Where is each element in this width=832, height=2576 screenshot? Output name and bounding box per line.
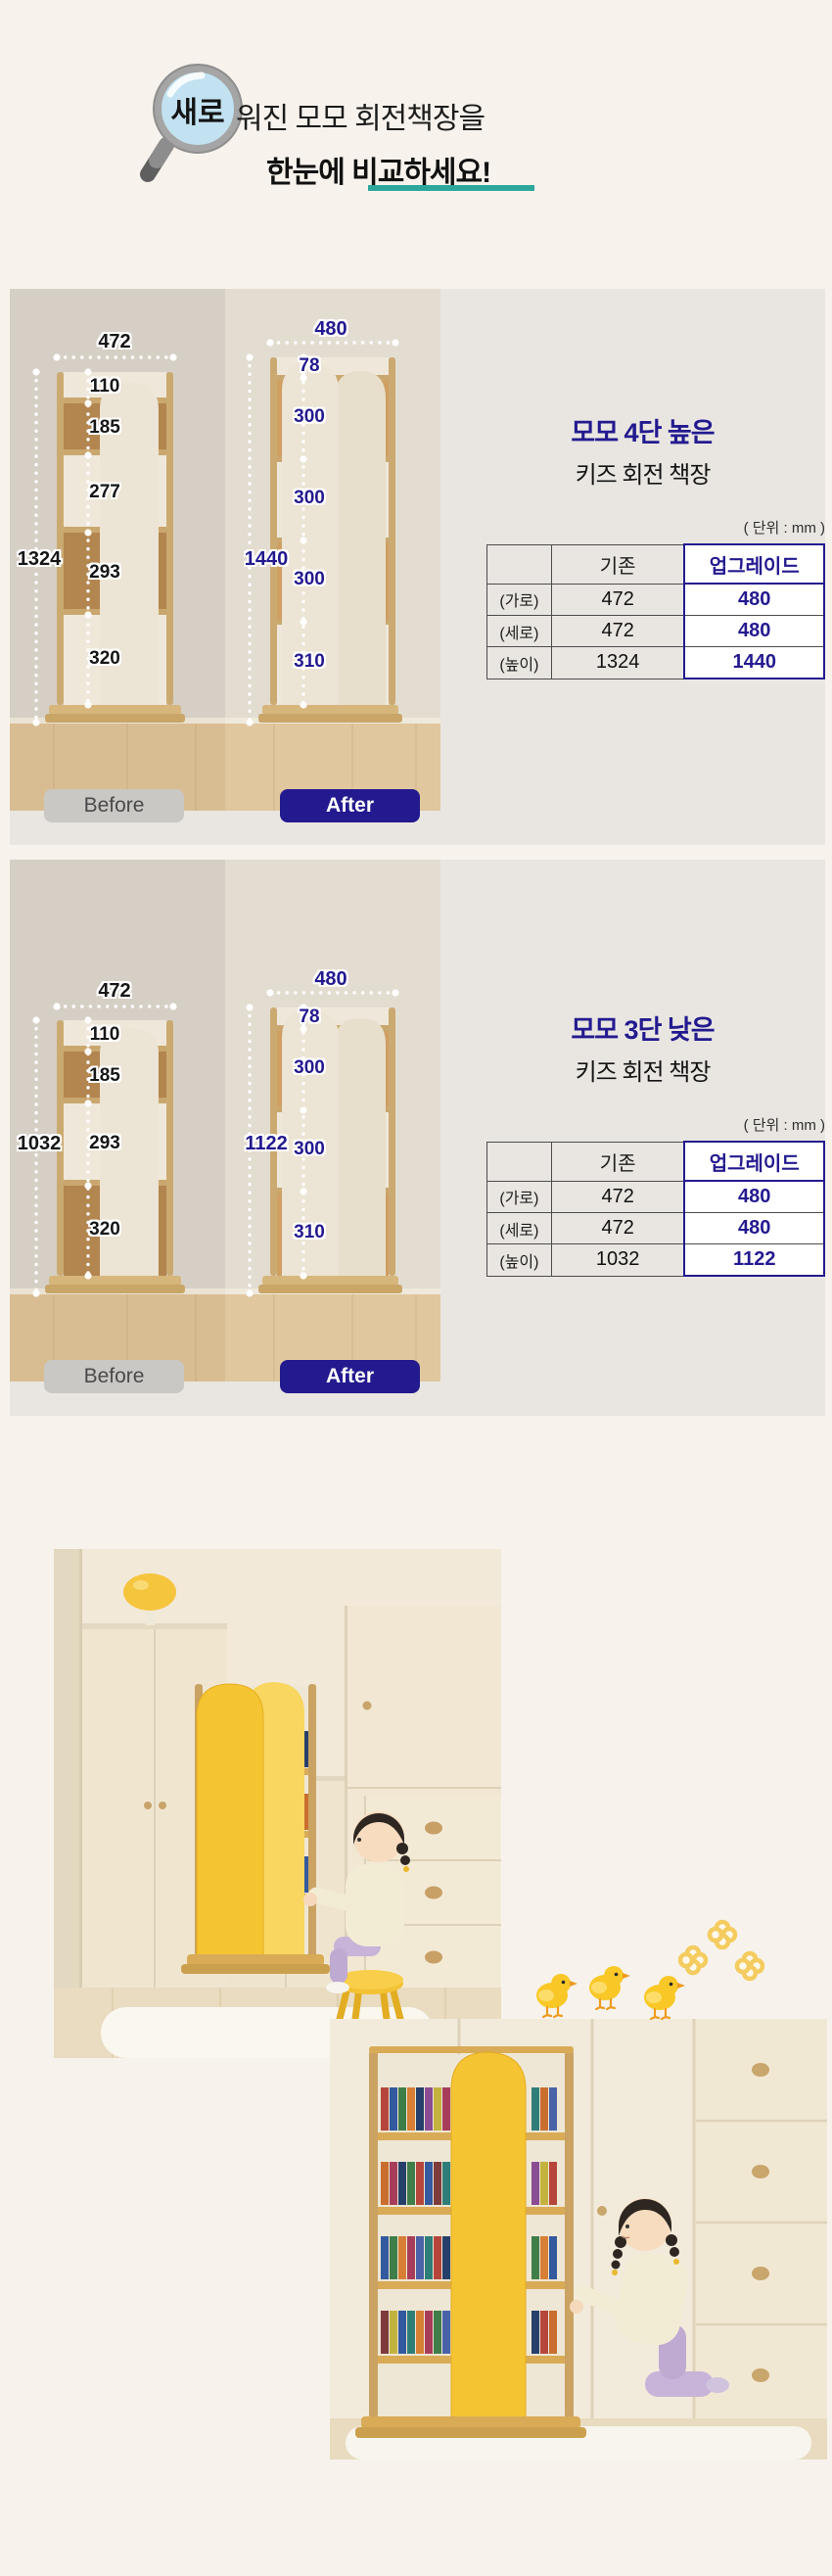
section-title-line1: 모모 3단 낮은 — [460, 1008, 825, 1047]
unit-note: ( 단위 : mm ) — [460, 517, 825, 538]
table-row: (세로) 472 480 — [487, 616, 825, 647]
old-value: 472 — [551, 1213, 684, 1244]
new-value: 1440 — [684, 647, 824, 679]
old-value: 472 — [551, 616, 684, 647]
measurement-segment: 185 — [89, 1066, 120, 1085]
row-label: (가로) — [487, 584, 552, 616]
table-header-upgrade: 업그레이드 — [684, 1142, 824, 1181]
row-label: (가로) — [487, 1181, 552, 1213]
before-photo-3tier: 472 110 185 293 320 1032 — [10, 860, 225, 1382]
table-header-upgrade: 업그레이드 — [684, 544, 824, 584]
measurement-segment: 310 — [294, 652, 325, 671]
measurement-width: 472 — [98, 332, 130, 351]
table-header-old: 기존 — [551, 1142, 684, 1181]
measurement-total: 1122 — [245, 1134, 287, 1153]
before-label: Before — [44, 1360, 184, 1393]
section-info: 모모 4단 높은 키즈 회전 책장 ( 단위 : mm ) 기존 업그레이드 (… — [460, 411, 825, 679]
table-row: (높이) 1032 1122 — [487, 1244, 825, 1277]
old-value: 472 — [551, 1181, 684, 1213]
browsing-scene — [330, 2019, 827, 2459]
row-label: (세로) — [487, 616, 552, 647]
before-photo-4tier: 472 110 185 277 293 320 1324 — [10, 289, 225, 811]
table-row: (가로) 472 480 — [487, 1181, 825, 1213]
yellow-bookshelf — [181, 1682, 330, 1974]
measurement-total: 1324 — [18, 549, 62, 569]
table-header-blank — [487, 544, 552, 584]
measurement-segment: 110 — [90, 377, 120, 396]
measurement-segment: 277 — [89, 483, 120, 501]
after-photo-3tier: 480 78 300 300 310 1122 — [225, 860, 440, 1382]
comparison-section-4tier: 472 110 185 277 293 320 1324 — [10, 289, 825, 845]
section-title-line1: 모모 4단 높은 — [460, 411, 825, 449]
table-header-old: 기존 — [551, 544, 684, 584]
measurement-segment: 320 — [89, 1220, 120, 1239]
before-bookshelf-scene — [10, 860, 225, 1382]
section-title-line2: 키즈 회전 책장 — [460, 455, 825, 490]
after-photo-4tier: 480 78 300 300 300 310 1440 — [225, 289, 440, 811]
new-value: 480 — [684, 1213, 824, 1244]
yellow-bookshelf — [355, 2046, 586, 2438]
measurement-segment: 320 — [89, 649, 120, 668]
flower-icon — [680, 1922, 763, 1979]
after-label: After — [280, 789, 420, 822]
after-label: After — [280, 1360, 420, 1393]
row-label: (높이) — [487, 647, 552, 679]
lifestyle-photo-reading — [54, 1549, 501, 2058]
old-value: 472 — [551, 584, 684, 616]
table-row: (높이) 1324 1440 — [487, 647, 825, 679]
comparison-section-3tier: 472 110 185 293 320 1032 — [10, 860, 825, 1416]
reading-scene — [54, 1549, 501, 2058]
measurement-width: 480 — [314, 969, 347, 989]
measurement-segment: 300 — [294, 1140, 325, 1158]
section-info: 모모 3단 낮은 키즈 회전 책장 ( 단위 : mm ) 기존 업그레이드 (… — [460, 1008, 825, 1277]
chick-icon — [644, 1976, 685, 2019]
measurement-segment: 293 — [89, 1134, 120, 1152]
product-detail-page: 새로 워진 모모 회전책장을 한눈에 비교하세요! — [0, 0, 832, 2576]
table-row: (가로) 472 480 — [487, 584, 825, 616]
new-value: 480 — [684, 1181, 824, 1213]
measurement-segment: 185 — [89, 418, 120, 437]
chick-icon — [536, 1974, 578, 2017]
measurement-segment: 78 — [299, 356, 319, 375]
header-line2: 한눈에 비교하세요! — [266, 148, 490, 191]
new-value: 480 — [684, 584, 824, 616]
measurement-width: 480 — [314, 319, 347, 339]
measurement-total: 1032 — [18, 1134, 62, 1153]
header-line1: 워진 모모 회전책장을 — [236, 94, 485, 137]
table-header-blank — [487, 1142, 552, 1181]
header-highlight-text: 새로 — [170, 88, 224, 131]
measurement-segment: 110 — [90, 1025, 120, 1044]
measurement-segment: 300 — [294, 489, 325, 507]
measurement-total: 1440 — [245, 549, 289, 569]
comparison-table: 기존 업그레이드 (가로) 472 480 (세로) 472 480 (높이) … — [486, 543, 825, 679]
measurement-segment: 300 — [294, 570, 325, 588]
measurement-width: 472 — [98, 981, 130, 1001]
measurement-segment: 300 — [294, 1058, 325, 1077]
old-value: 1324 — [551, 647, 684, 679]
measurement-segment: 78 — [299, 1007, 319, 1026]
unit-note: ( 단위 : mm ) — [460, 1114, 825, 1135]
table-row: (세로) 472 480 — [487, 1213, 825, 1244]
decoration-chicks — [531, 1917, 765, 2023]
row-label: (세로) — [487, 1213, 552, 1244]
measurement-segment: 310 — [294, 1223, 325, 1241]
measurement-segment: 300 — [294, 407, 325, 426]
after-bookshelf-scene — [225, 860, 440, 1382]
chick-icon — [589, 1966, 630, 2009]
lifestyle-photo-browsing — [330, 2019, 827, 2459]
new-value: 480 — [684, 616, 824, 647]
measurement-segment: 293 — [89, 563, 120, 582]
comparison-table: 기존 업그레이드 (가로) 472 480 (세로) 472 480 (높이) … — [486, 1141, 825, 1277]
old-value: 1032 — [551, 1244, 684, 1277]
row-label: (높이) — [487, 1244, 552, 1277]
section-title-line2: 키즈 회전 책장 — [460, 1053, 825, 1087]
new-value: 1122 — [684, 1244, 824, 1277]
before-label: Before — [44, 789, 184, 822]
